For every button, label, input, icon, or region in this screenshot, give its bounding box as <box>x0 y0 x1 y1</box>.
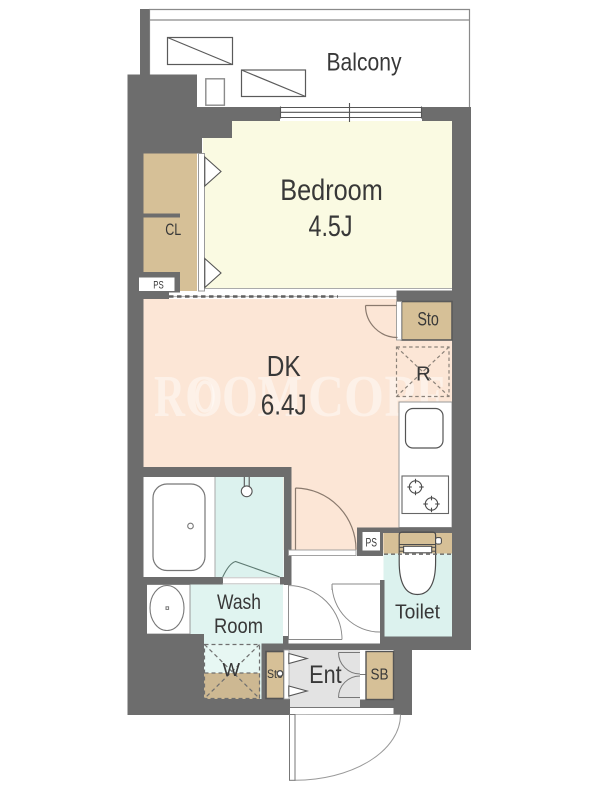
svg-text:Toilet: Toilet <box>395 600 440 623</box>
svg-text:DK: DK <box>267 351 302 383</box>
svg-text:W: W <box>222 659 240 680</box>
svg-text:O: O <box>222 363 258 429</box>
svg-text:Wash: Wash <box>217 590 261 614</box>
svg-text:PS: PS <box>153 280 164 292</box>
svg-text:Ent: Ent <box>309 661 342 689</box>
svg-text:O: O <box>344 363 384 429</box>
svg-text:Room: Room <box>214 614 263 638</box>
svg-text:R: R <box>416 363 431 386</box>
svg-text:CL: CL <box>165 220 181 239</box>
svg-text:Balcony: Balcony <box>327 49 402 77</box>
svg-text:C: C <box>308 363 344 429</box>
svg-text:Bedroom: Bedroom <box>280 174 383 207</box>
svg-text:R: R <box>154 363 186 429</box>
svg-text:6.4J: 6.4J <box>261 389 307 421</box>
svg-text:O: O <box>185 363 223 429</box>
svg-text:Sto: Sto <box>417 310 439 331</box>
svg-text:PS: PS <box>366 536 378 550</box>
svg-text:SB: SB <box>371 667 389 684</box>
svg-text:4.5J: 4.5J <box>309 210 353 243</box>
